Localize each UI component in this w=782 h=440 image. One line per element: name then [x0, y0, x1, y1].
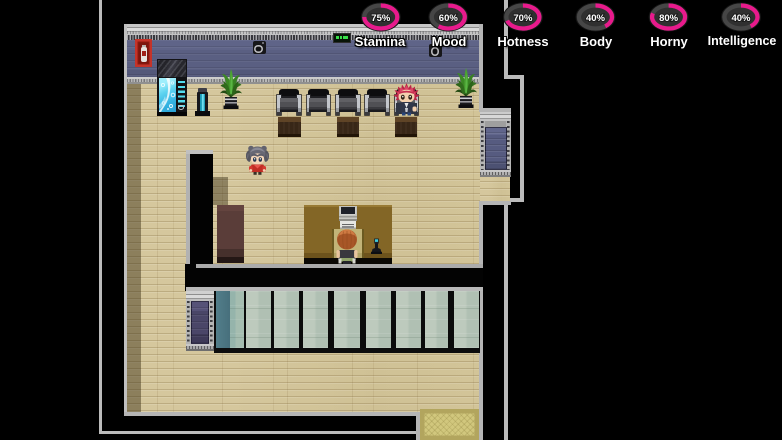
svg-text:80%: 80% — [659, 13, 679, 24]
svg-text:40%: 40% — [731, 13, 751, 24]
svg-text:70%: 70% — [513, 13, 533, 24]
svg-text:75%: 75% — [371, 13, 391, 24]
svg-text:60%: 60% — [439, 13, 459, 24]
svg-text:40%: 40% — [586, 13, 606, 24]
